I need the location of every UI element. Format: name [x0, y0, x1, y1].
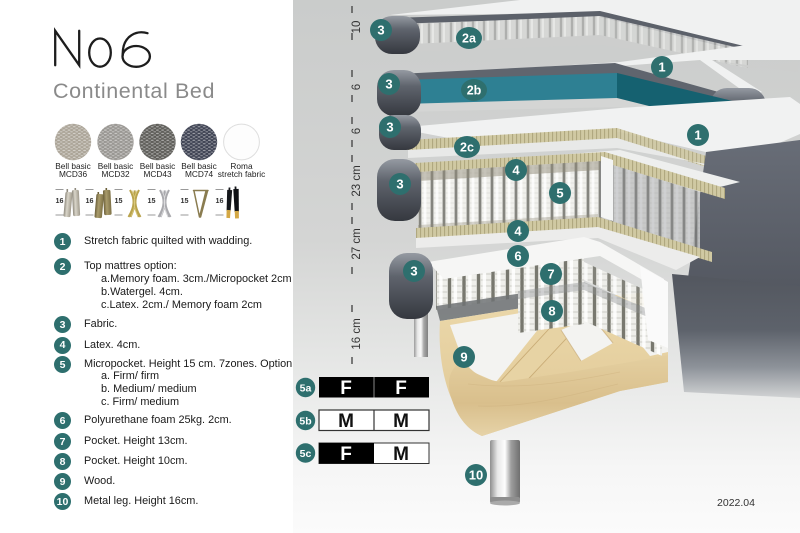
svg-text:5: 5 — [556, 186, 563, 201]
svg-text:27 cm: 27 cm — [351, 228, 363, 259]
svg-text:5b: 5b — [299, 416, 311, 428]
svg-text:8: 8 — [548, 304, 555, 319]
svg-text:3: 3 — [385, 77, 392, 92]
svg-text:6: 6 — [351, 128, 363, 134]
svg-text:15: 15 — [115, 196, 123, 205]
svg-text:23 cm: 23 cm — [351, 165, 363, 196]
svg-text:16: 16 — [86, 196, 94, 205]
svg-text:2022.04: 2022.04 — [717, 497, 755, 509]
svg-text:M: M — [393, 411, 409, 432]
svg-text:F: F — [395, 378, 407, 399]
svg-text:3: 3 — [396, 177, 403, 192]
svg-text:6: 6 — [351, 84, 363, 90]
svg-text:2b: 2b — [467, 84, 482, 98]
svg-text:4: 4 — [512, 163, 520, 178]
svg-text:16: 16 — [216, 196, 224, 205]
svg-text:1: 1 — [694, 128, 701, 143]
svg-text:15: 15 — [181, 196, 189, 205]
svg-text:15: 15 — [148, 196, 156, 205]
svg-text:6: 6 — [514, 249, 521, 264]
svg-text:5c: 5c — [300, 448, 312, 460]
svg-text:F: F — [340, 444, 352, 465]
svg-text:3: 3 — [386, 120, 393, 135]
svg-text:2a: 2a — [462, 32, 477, 46]
svg-text:9: 9 — [460, 350, 467, 365]
svg-text:F: F — [340, 378, 352, 399]
svg-text:M: M — [393, 444, 409, 465]
svg-text:10: 10 — [469, 468, 483, 483]
svg-text:3: 3 — [377, 23, 384, 38]
svg-text:1: 1 — [658, 60, 665, 75]
svg-text:2c: 2c — [460, 141, 474, 155]
svg-text:3: 3 — [410, 264, 417, 279]
svg-text:16: 16 — [56, 196, 64, 205]
svg-text:7: 7 — [547, 267, 554, 282]
svg-text:M: M — [338, 411, 354, 432]
svg-text:10: 10 — [351, 21, 363, 34]
svg-text:16 cm: 16 cm — [351, 318, 363, 349]
svg-text:5a: 5a — [300, 383, 312, 395]
svg-text:4: 4 — [514, 224, 522, 239]
